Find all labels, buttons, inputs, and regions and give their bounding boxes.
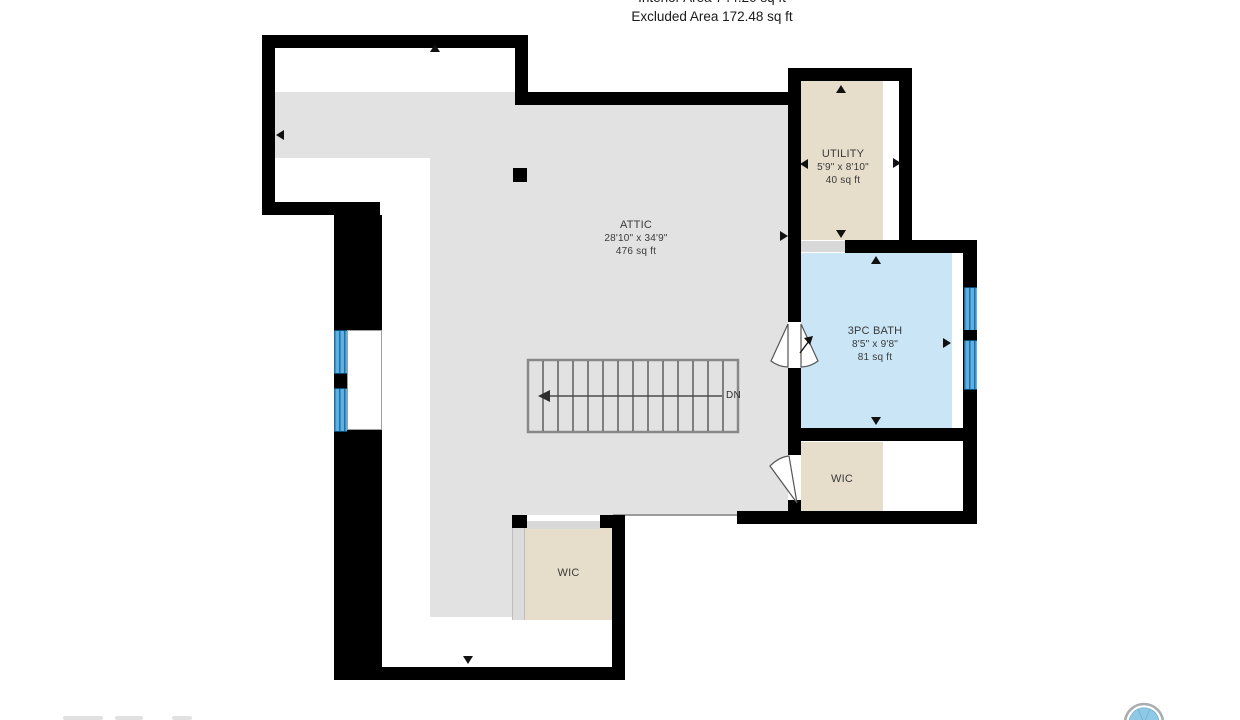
attic-floor <box>275 92 515 105</box>
cutoff-watermark-text <box>63 716 103 720</box>
wall <box>512 515 527 528</box>
wall <box>788 428 977 441</box>
room-area: 81 sq ft <box>815 351 935 364</box>
attic-floor <box>430 515 512 617</box>
cutoff-watermark-text <box>172 716 192 720</box>
attic-floor <box>430 158 788 515</box>
wall <box>337 667 625 680</box>
wic-right-label: WIC <box>801 473 883 486</box>
wall-window-mullion <box>334 372 347 388</box>
window-icon <box>334 330 347 374</box>
attic-floor <box>275 105 788 158</box>
floorplan-page: Interior Area 744.20 sq ft Excluded Area… <box>0 0 1240 720</box>
wall <box>515 92 790 105</box>
window-icon <box>334 388 347 432</box>
structural-post <box>513 168 527 182</box>
stairs-down-label: DN <box>726 390 741 401</box>
wall <box>262 202 380 215</box>
room-area: 476 sq ft <box>556 245 716 258</box>
wall <box>262 35 275 215</box>
room-name: WIC <box>525 567 612 580</box>
room-dimensions: 28'10" x 34'9" <box>556 232 716 245</box>
utility-label: UTILITY 5'9" x 8'10" 40 sq ft <box>783 148 903 187</box>
wall <box>262 35 528 48</box>
interior-area-text: Interior Area 744.20 sq ft <box>562 0 862 5</box>
room-name: UTILITY <box>783 148 903 161</box>
wic-bottom-door-opening <box>527 521 600 529</box>
room-dimensions: 5'9" x 8'10" <box>783 161 903 174</box>
wall <box>788 368 801 455</box>
wall <box>790 68 912 81</box>
attic-label: ATTIC 28'10" x 34'9" 476 sq ft <box>556 219 716 258</box>
utility-door-opening <box>798 241 845 252</box>
room-area: 40 sq ft <box>783 174 903 187</box>
wic-bottom-label: WIC <box>525 567 612 580</box>
stairwell-edge-line <box>613 514 737 516</box>
wall <box>737 511 977 524</box>
brand-logo-icon <box>1125 704 1163 720</box>
wall <box>845 240 977 253</box>
arrow-down-icon <box>463 656 473 664</box>
room-name: ATTIC <box>556 219 716 232</box>
room-dimensions: 8'5" x 9'8" <box>815 338 935 351</box>
bath-excluded-strip <box>952 253 963 428</box>
wall-window-mullion <box>964 330 977 340</box>
dormer-nook <box>347 330 382 430</box>
room-name: WIC <box>801 473 883 486</box>
wall <box>612 515 625 680</box>
wall <box>334 215 382 330</box>
window-icon <box>964 287 977 332</box>
bath-label: 3PC BATH 8'5" x 9'8" 81 sq ft <box>815 325 935 364</box>
room-name: 3PC BATH <box>815 325 935 338</box>
wall <box>788 68 801 322</box>
wall <box>334 430 382 680</box>
cutoff-watermark-text <box>115 716 143 720</box>
excluded-area-text: Excluded Area 172.48 sq ft <box>562 9 862 24</box>
wic-right-excluded-strip <box>883 442 963 511</box>
wic-bottom-divider-wall <box>512 528 525 620</box>
window-icon <box>964 340 977 390</box>
